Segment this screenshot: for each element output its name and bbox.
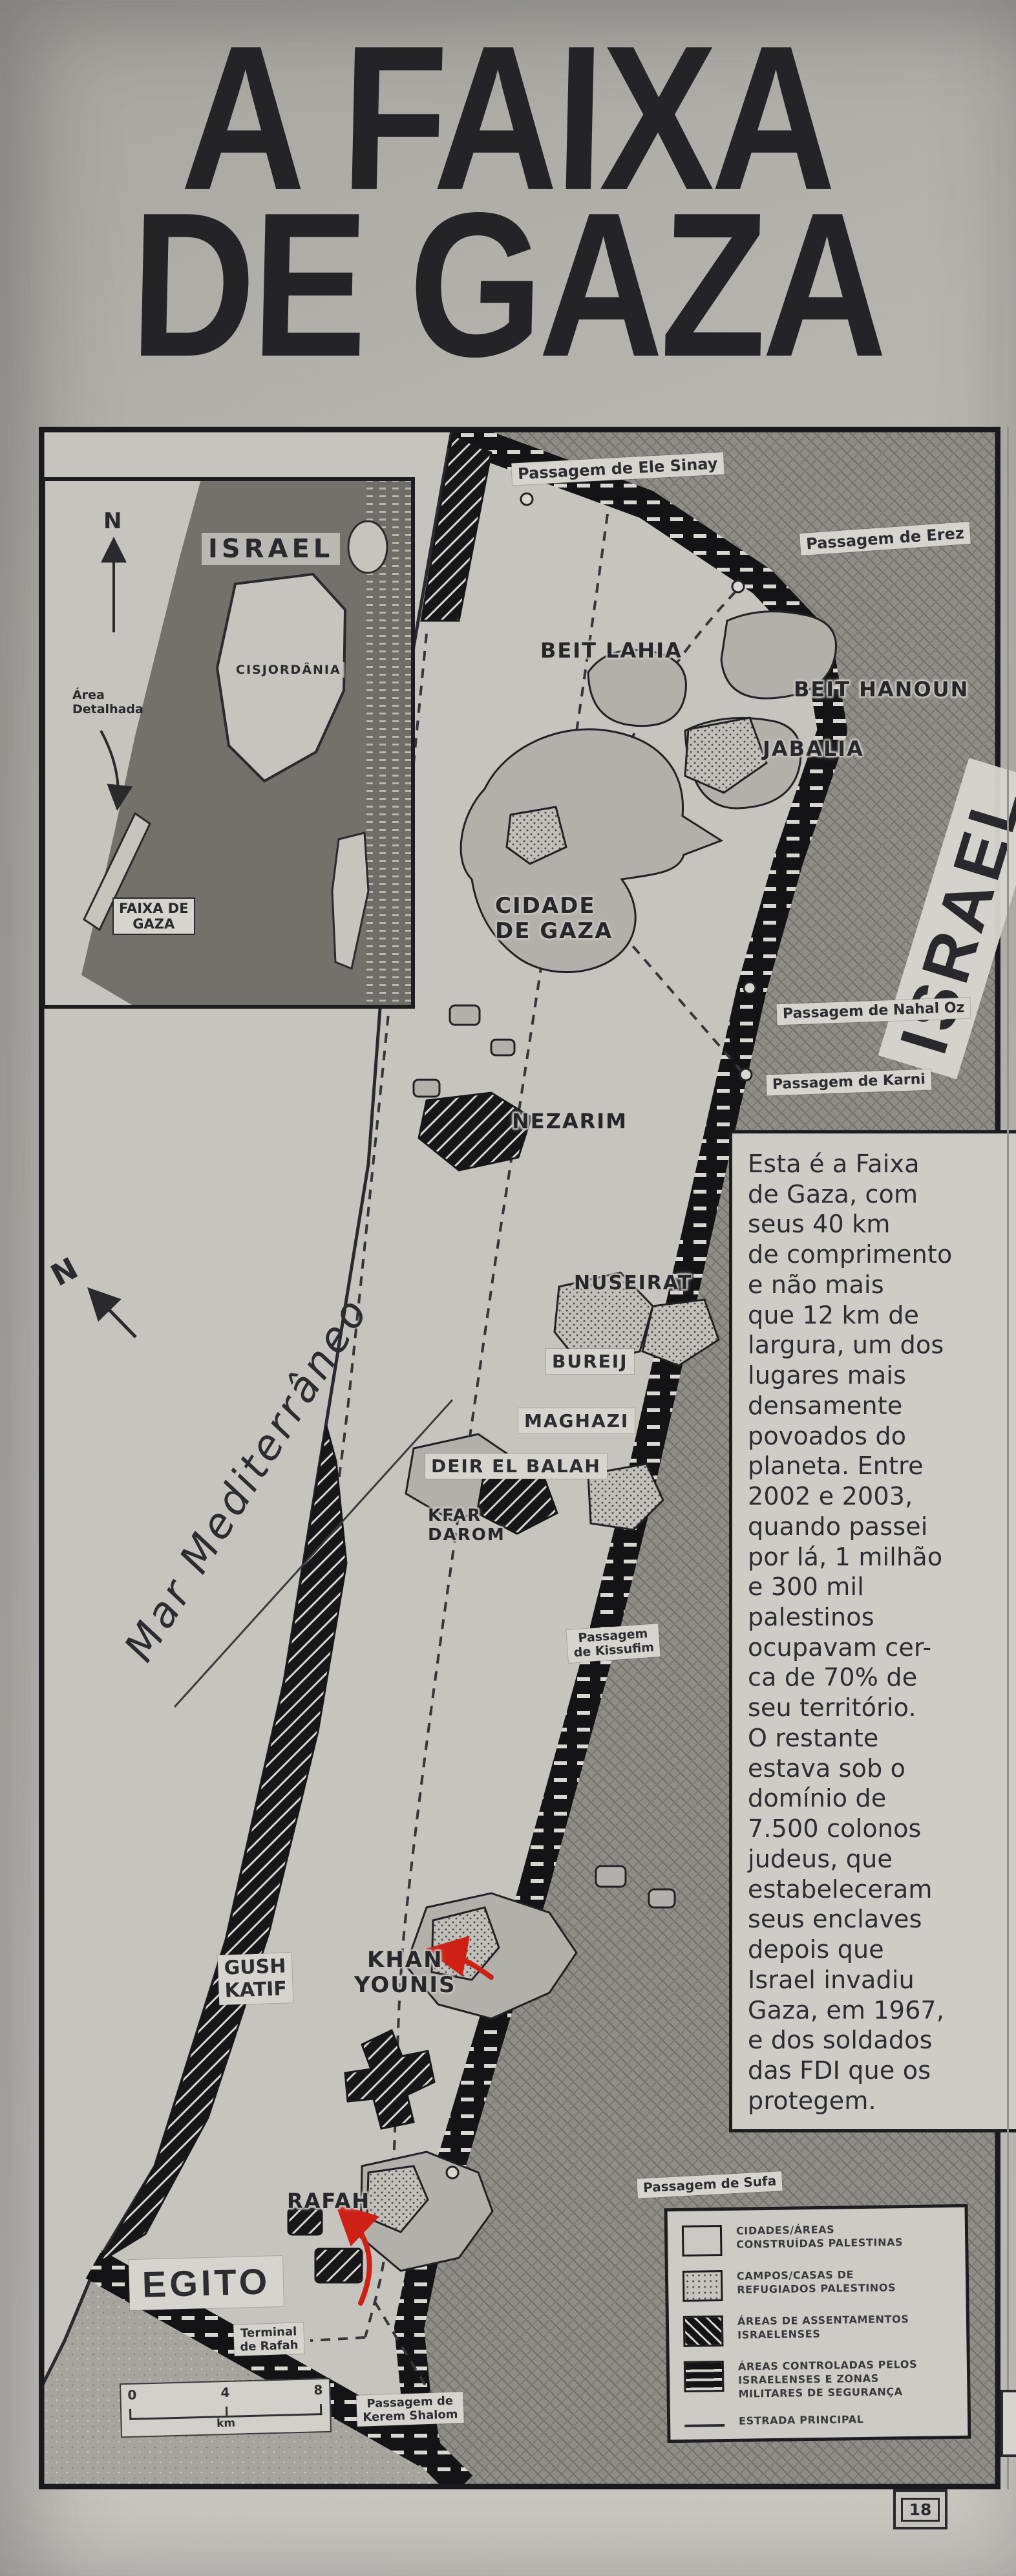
place-nuseirat-label: NUSEIRAT bbox=[574, 1272, 692, 1295]
place-bureij-label: BUREIJ bbox=[546, 1349, 634, 1374]
legend-item-israeli-settlements: ÁREAS DE ASSENTAMENTOS ISRAELENSES bbox=[683, 2312, 958, 2347]
map-legend: CIDADES/ÁREAS CONSTRUÍDAS PALESTINAS CAM… bbox=[664, 2204, 971, 2443]
place-gush-katif-label: GUSH KATIF bbox=[218, 1953, 293, 2005]
legend-swatch-main-road bbox=[684, 2424, 725, 2427]
adjacent-panel-edge bbox=[1007, 427, 1009, 2489]
legend-item-israeli-controlled: ÁREAS CONTROLADAS PELOS ISRAELENSES E ZO… bbox=[684, 2357, 958, 2401]
place-beit-hanoun-label: BEIT HANOUN bbox=[794, 678, 969, 702]
adjacent-panel-box-sliver bbox=[1000, 2390, 1016, 2457]
legend-label: CAMPOS/CASAS DE REFUGIADOS PALESTINOS bbox=[737, 2268, 896, 2297]
inset-locator-map: N ISRAEL CISJORDÂNIA Área Detalhada FAIX… bbox=[41, 477, 415, 1009]
scale-8: 8 bbox=[313, 2382, 323, 2398]
inset-north-label: N bbox=[103, 508, 122, 534]
egypt-label: EGITO bbox=[129, 2256, 284, 2310]
place-deir-el-balah-label: DEIR EL BALAH bbox=[425, 1454, 607, 1479]
inset-faixa-de-gaza-label: FAIXA DE GAZA bbox=[114, 899, 194, 934]
page-title-line2: DE GAZA bbox=[79, 202, 937, 369]
crossing-kissufim-label: Passagem de Kissufim bbox=[566, 1624, 661, 1663]
legend-swatch-refugee-camps bbox=[683, 2270, 723, 2302]
crossing-terminal-rafah-label: Terminal de Rafah bbox=[233, 2323, 304, 2356]
place-jabalia-label: JABALIA bbox=[763, 737, 864, 761]
legend-item-palestinian-built: CIDADES/ÁREAS CONSTRUÍDAS PALESTINAS bbox=[682, 2222, 957, 2257]
legend-item-main-road: ESTRADA PRINCIPAL bbox=[684, 2412, 958, 2429]
legend-label: ÁREAS DE ASSENTAMENTOS ISRAELENSES bbox=[737, 2313, 909, 2342]
place-kfar-darom-label: KFAR DAROM bbox=[428, 1507, 505, 1545]
scale-bar: 0 4 8 km bbox=[120, 2378, 332, 2438]
gaza-map-panel: N N ISRAEL CISJORDÂNIA Área Detalhada F bbox=[39, 427, 1000, 2489]
scale-bar-midtick bbox=[226, 2407, 228, 2416]
scale-4: 4 bbox=[220, 2385, 230, 2400]
place-cidade-de-gaza-label: CIDADE DE GAZA bbox=[495, 894, 613, 944]
legend-label: ÁREAS CONTROLADAS PELOS ISRAELENSES E ZO… bbox=[738, 2358, 918, 2401]
inset-israel-label: ISRAEL bbox=[202, 533, 340, 565]
crossing-kerem-shalom-label: Passagem de Kerem Shalom bbox=[356, 2392, 464, 2427]
place-rafah-label: RAFAH bbox=[287, 2189, 370, 2213]
narration-box: Esta é a Faixa de Gaza, com seus 40 km d… bbox=[729, 1130, 1016, 2132]
page-number-box: 18 bbox=[893, 2489, 947, 2529]
legend-swatch-palestinian-built bbox=[682, 2225, 723, 2257]
legend-item-refugee-camps: CAMPOS/CASAS DE REFUGIADOS PALESTINOS bbox=[683, 2267, 957, 2302]
scale-0: 0 bbox=[127, 2387, 137, 2403]
place-maghazi-label: MAGHAZI bbox=[518, 1408, 635, 1433]
legend-label: CIDADES/ÁREAS CONSTRUÍDAS PALESTINAS bbox=[736, 2222, 903, 2251]
place-nezarim-label: NEZARIM bbox=[512, 1110, 628, 1133]
page-title: A FAIXA DE GAZA bbox=[0, 35, 1016, 369]
legend-label: ESTRADA PRINCIPAL bbox=[739, 2413, 864, 2428]
scale-unit: km bbox=[217, 2417, 236, 2431]
place-beit-lahia-label: BEIT LAHIA bbox=[540, 639, 683, 663]
place-khan-younis-label: KHAN YOUNIS bbox=[354, 1948, 456, 1998]
page-number: 18 bbox=[901, 2498, 940, 2522]
comic-page: { "title": { "line1": "A FAIXA", "line2"… bbox=[0, 0, 1016, 2576]
legend-swatch-israeli-settlements bbox=[683, 2315, 724, 2347]
inset-cisjordania-label: CISJORDÂNIA bbox=[233, 662, 344, 678]
inset-area-detalhada-label: Área Detalhada bbox=[72, 688, 143, 716]
legend-swatch-israeli-controlled bbox=[684, 2361, 725, 2392]
